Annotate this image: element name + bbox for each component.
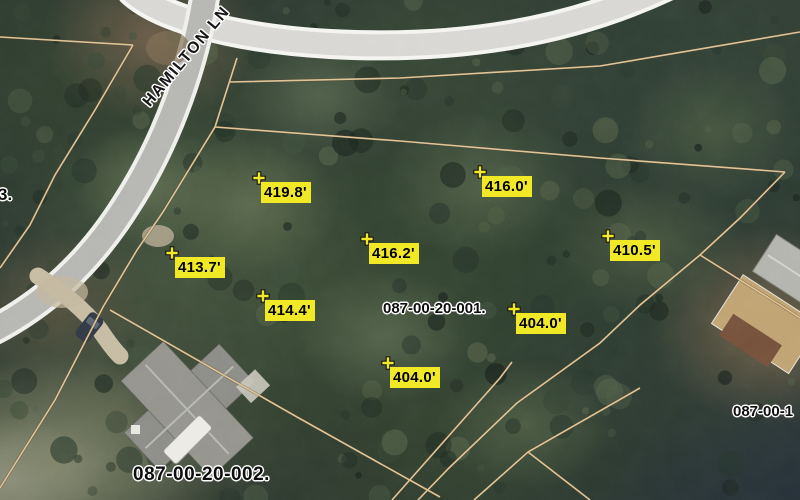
parcel-id-label-001: 087-00-20-001. [383,300,486,317]
elevation-label: 416.0' [482,176,532,197]
parcel-id-label-right-truncated: 087-00-1 [733,403,793,420]
neighbor-house [708,231,800,378]
parcel-id-label-left-truncated: 3. [0,185,12,205]
elevation-label: 413.7' [175,257,225,278]
elevation-label: 410.5' [610,240,660,261]
map-canvas[interactable]: HAMILTON LN 087-00-20-001. 087-00-20-002… [0,0,800,500]
parcel-id-label-002: 087-00-20-002. [133,464,270,486]
elevation-label: 404.0' [390,367,440,388]
shed [131,425,140,434]
elevation-label: 404.0' [516,313,566,334]
elevation-label: 419.8' [261,182,311,203]
elevation-label: 416.2' [369,243,419,264]
driveway [36,276,120,356]
elevation-label: 414.4' [265,300,315,321]
